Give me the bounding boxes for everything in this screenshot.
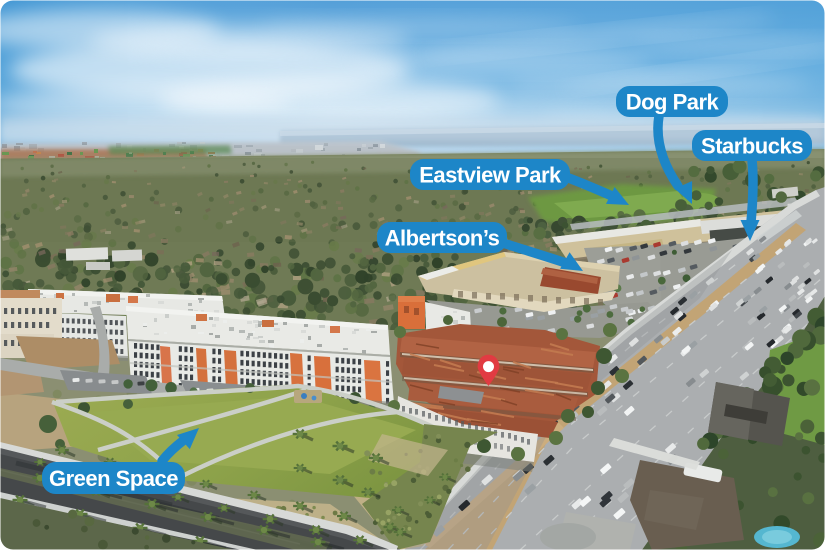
svg-text:Dog Park: Dog Park xyxy=(626,89,720,114)
svg-text:Albertson’s: Albertson’s xyxy=(385,225,500,250)
svg-text:Eastview Park: Eastview Park xyxy=(419,162,562,187)
svg-text:Green Space: Green Space xyxy=(49,466,178,491)
svg-text:Starbucks: Starbucks xyxy=(701,133,803,158)
